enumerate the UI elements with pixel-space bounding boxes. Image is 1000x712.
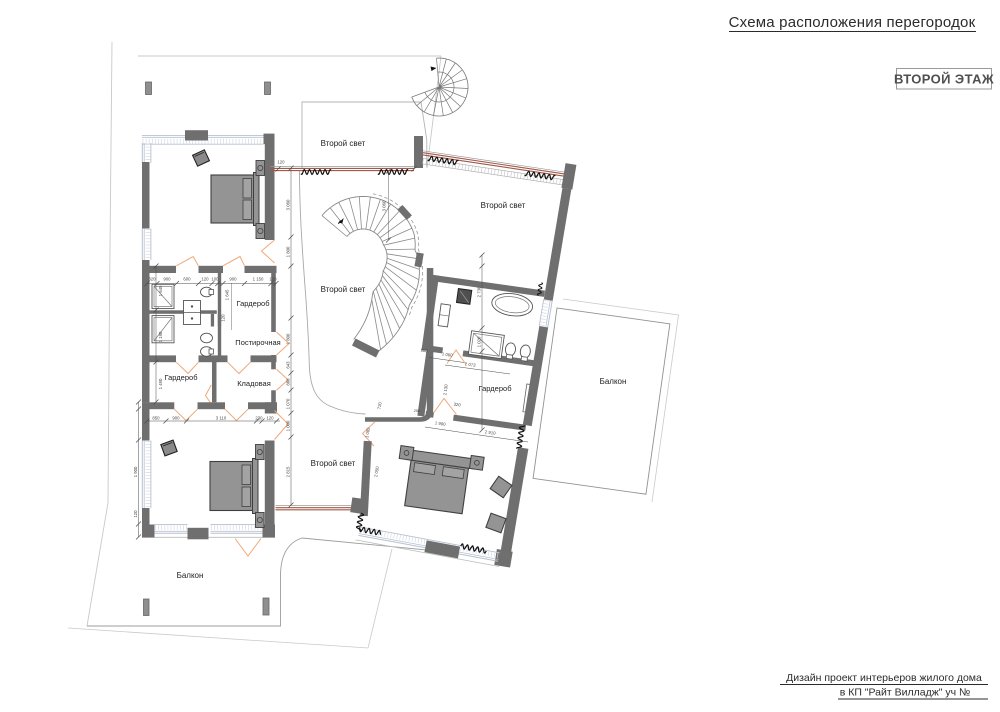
svg-text:Балкон: Балкон <box>177 571 204 580</box>
svg-text:1 490: 1 490 <box>158 378 163 389</box>
svg-text:3 110: 3 110 <box>216 416 227 421</box>
svg-text:Балкон: Балкон <box>600 377 627 386</box>
svg-text:120: 120 <box>133 510 138 518</box>
svg-text:2 738: 2 738 <box>477 286 482 297</box>
svg-text:3 060: 3 060 <box>382 200 387 211</box>
svg-text:Гардероб: Гардероб <box>237 299 270 308</box>
svg-text:1 645: 1 645 <box>158 285 163 296</box>
svg-text:ВТОРОЙ ЭТАЖ: ВТОРОЙ ЭТАЖ <box>894 72 994 87</box>
svg-text:2 815: 2 815 <box>286 466 291 477</box>
svg-text:Второй свет: Второй свет <box>321 285 366 294</box>
svg-text:600: 600 <box>183 276 191 281</box>
svg-text:900: 900 <box>172 416 180 421</box>
svg-text:1 150: 1 150 <box>253 276 264 281</box>
svg-text:Схема расположения перегородок: Схема расположения перегородок <box>729 14 976 31</box>
svg-text:1 800: 1 800 <box>286 246 291 257</box>
svg-text:900: 900 <box>163 276 171 281</box>
svg-text:Кладовая: Кладовая <box>237 379 271 388</box>
svg-text:1 000: 1 000 <box>286 420 291 431</box>
svg-text:1 190: 1 190 <box>158 331 163 342</box>
svg-text:230: 230 <box>255 416 263 421</box>
svg-text:Второй свет: Второй свет <box>311 459 356 468</box>
svg-text:1 645: 1 645 <box>225 289 230 300</box>
svg-text:888: 888 <box>286 378 291 386</box>
svg-text:1 070: 1 070 <box>286 398 291 409</box>
svg-text:643: 643 <box>286 361 291 369</box>
svg-text:Второй свет: Второй свет <box>321 139 366 148</box>
svg-text:1 900: 1 900 <box>133 466 138 477</box>
svg-text:100: 100 <box>211 276 219 281</box>
svg-text:900: 900 <box>229 276 237 281</box>
svg-text:320: 320 <box>148 276 156 281</box>
svg-text:120: 120 <box>277 160 285 165</box>
svg-text:3 060: 3 060 <box>286 199 291 210</box>
svg-text:1 020: 1 020 <box>477 336 482 347</box>
svg-text:Постирочная: Постирочная <box>235 338 280 347</box>
svg-text:Дизайн проект интерьеров жилог: Дизайн проект интерьеров жилого дома <box>786 672 982 684</box>
svg-text:Гардероб: Гардероб <box>165 373 198 382</box>
svg-text:850: 850 <box>152 416 160 421</box>
svg-text:в КП "Райт Вилладж" уч №: в КП "Райт Вилладж" уч № <box>840 687 971 699</box>
svg-text:120: 120 <box>221 314 226 322</box>
svg-text:1 800: 1 800 <box>286 333 291 344</box>
svg-text:120: 120 <box>201 276 209 281</box>
svg-text:250: 250 <box>414 408 421 413</box>
svg-text:120: 120 <box>269 276 277 281</box>
svg-text:Второй свет: Второй свет <box>481 201 526 210</box>
svg-text:120: 120 <box>266 416 274 421</box>
svg-text:Гардероб: Гардероб <box>479 384 512 393</box>
